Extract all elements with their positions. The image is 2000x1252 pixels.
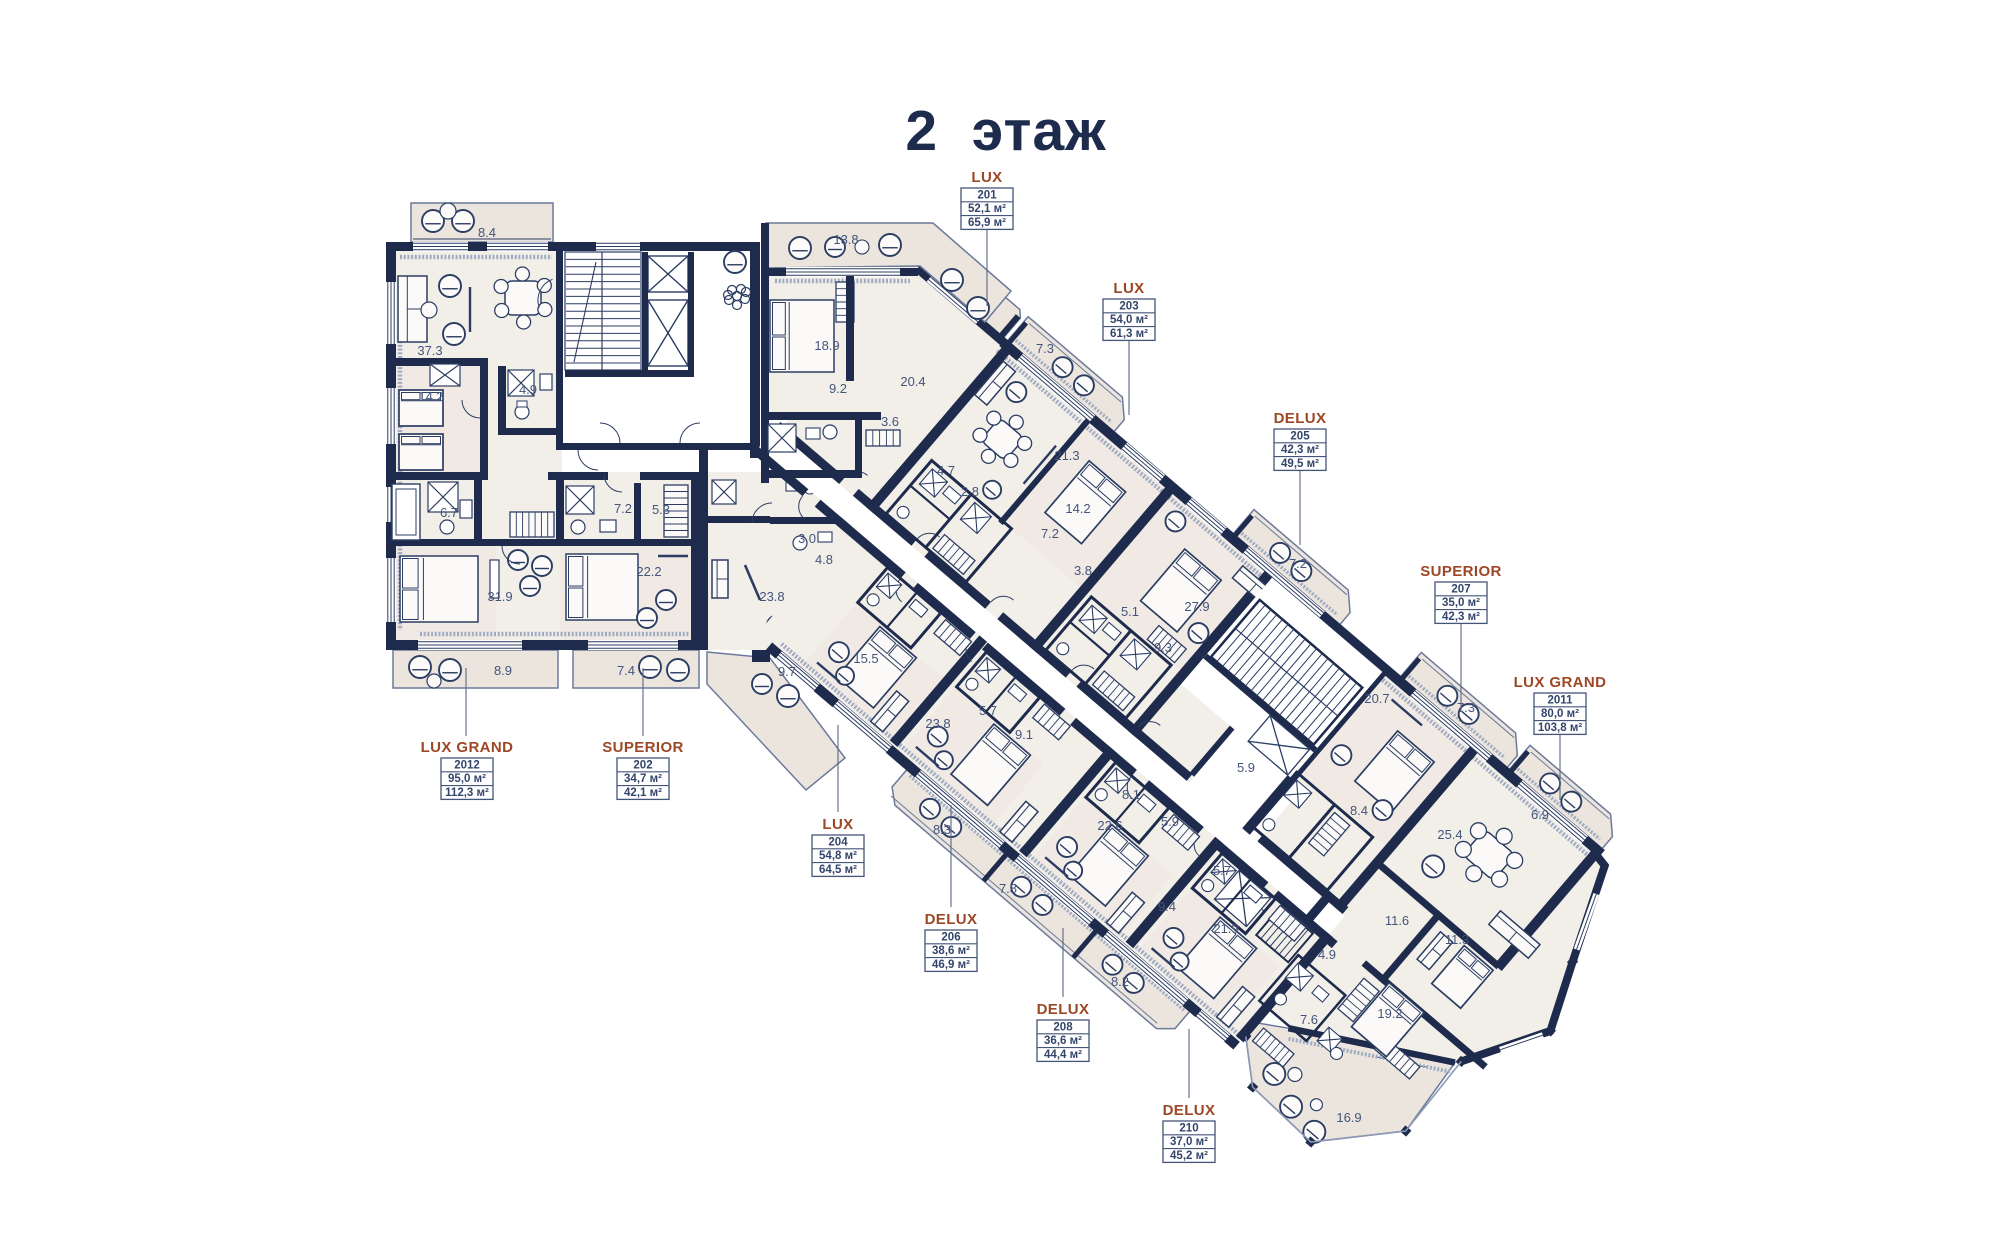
svg-text:21.9: 21.9 [1213, 921, 1238, 936]
svg-text:7.2: 7.2 [1041, 526, 1059, 541]
svg-text:19.2: 19.2 [1377, 1006, 1402, 1021]
svg-text:15.5: 15.5 [853, 651, 878, 666]
svg-text:LUX: LUX [822, 816, 853, 833]
svg-text:206: 206 [941, 931, 960, 943]
svg-text:14.2: 14.2 [418, 389, 443, 404]
svg-text:42,3 м²: 42,3 м² [1281, 444, 1319, 456]
svg-text:9.1: 9.1 [1015, 727, 1033, 742]
svg-text:207: 207 [1451, 583, 1470, 595]
svg-text:20.4: 20.4 [900, 374, 925, 389]
svg-text:9.7: 9.7 [778, 664, 796, 679]
svg-text:54,0 м²: 54,0 м² [1110, 314, 1148, 326]
svg-text:210: 210 [1179, 1122, 1198, 1134]
svg-text:42,1 м²: 42,1 м² [624, 787, 662, 799]
svg-text:11.6: 11.6 [1385, 913, 1409, 928]
svg-text:4.8: 4.8 [815, 552, 833, 567]
svg-text:3.6: 3.6 [881, 414, 899, 429]
svg-text:49,5 м²: 49,5 м² [1281, 458, 1319, 470]
svg-text:65,9 м²: 65,9 м² [968, 217, 1006, 229]
svg-text:36,6 м²: 36,6 м² [1044, 1035, 1082, 1047]
svg-text:DELUX: DELUX [1163, 1102, 1216, 1119]
svg-text:21.3: 21.3 [1054, 448, 1079, 463]
svg-text:23.8: 23.8 [925, 716, 950, 731]
svg-text:34,7 м²: 34,7 м² [624, 773, 662, 785]
svg-text:13.8: 13.8 [833, 232, 858, 247]
svg-text:35,0 м²: 35,0 м² [1442, 597, 1480, 609]
svg-text:5.7: 5.7 [979, 703, 997, 718]
svg-text:208: 208 [1053, 1021, 1073, 1033]
svg-text:202: 202 [633, 759, 652, 771]
svg-text:201: 201 [977, 189, 997, 201]
svg-text:8.4: 8.4 [478, 225, 496, 240]
svg-text:7.8: 7.8 [999, 881, 1017, 896]
svg-text:5.7: 5.7 [1213, 863, 1231, 878]
svg-text:204: 204 [828, 836, 848, 848]
svg-text:205: 205 [1290, 430, 1310, 442]
svg-text:38,6 м²: 38,6 м² [932, 945, 970, 957]
svg-text:DELUX: DELUX [925, 911, 978, 928]
svg-text:22.6: 22.6 [1097, 818, 1122, 833]
svg-text:LUX GRAND: LUX GRAND [1514, 674, 1607, 691]
svg-text:52,1 м²: 52,1 м² [968, 203, 1006, 215]
svg-text:3.0: 3.0 [798, 531, 816, 546]
svg-text:27.9: 27.9 [1184, 599, 1209, 614]
svg-text:95,0 м²: 95,0 м² [448, 773, 486, 785]
svg-text:5.9: 5.9 [1237, 760, 1255, 775]
svg-text:203: 203 [1119, 300, 1138, 312]
svg-text:7.2: 7.2 [614, 501, 632, 516]
svg-text:2012: 2012 [454, 759, 480, 771]
svg-text:44,4 м²: 44,4 м² [1044, 1049, 1082, 1061]
svg-text:31.9: 31.9 [487, 589, 512, 604]
svg-text:42,3 м²: 42,3 м² [1442, 611, 1480, 623]
svg-text:LUX GRAND: LUX GRAND [421, 739, 514, 756]
svg-text:45,2 м²: 45,2 м² [1170, 1150, 1208, 1162]
svg-text:80,0 м²: 80,0 м² [1541, 708, 1579, 720]
svg-text:4.9: 4.9 [519, 382, 537, 397]
svg-text:20.7: 20.7 [1364, 691, 1389, 706]
svg-text:18.9: 18.9 [814, 338, 839, 353]
svg-text:37,0 м²: 37,0 м² [1170, 1136, 1208, 1148]
svg-text:37.3: 37.3 [417, 343, 442, 358]
svg-text:SUPERIOR: SUPERIOR [602, 739, 684, 756]
svg-text:8.3: 8.3 [933, 822, 951, 837]
svg-text:DELUX: DELUX [1274, 410, 1327, 427]
svg-text:9.4: 9.4 [1158, 899, 1176, 914]
svg-text:16.9: 16.9 [1336, 1110, 1361, 1125]
svg-text:LUX: LUX [971, 169, 1002, 186]
svg-text:8.2: 8.2 [1111, 974, 1129, 989]
svg-text:4.7: 4.7 [937, 463, 955, 478]
svg-text:7.3: 7.3 [1036, 341, 1054, 356]
svg-text:5.9: 5.9 [1161, 814, 1179, 829]
svg-text:64,5 м²: 64,5 м² [819, 864, 857, 876]
svg-text:61,3 м²: 61,3 м² [1110, 328, 1148, 340]
svg-text:103,8 м²: 103,8 м² [1538, 722, 1582, 734]
svg-text:11.3: 11.3 [1445, 932, 1469, 947]
svg-text:3.8: 3.8 [1074, 563, 1092, 578]
svg-text:25.4: 25.4 [1437, 827, 1462, 842]
svg-text:6.7: 6.7 [440, 505, 458, 520]
svg-text:8.1: 8.1 [1122, 787, 1140, 802]
svg-text:2011: 2011 [1548, 694, 1574, 706]
svg-text:2.8: 2.8 [961, 484, 979, 499]
svg-text:2 этаж: 2 этаж [905, 99, 1106, 163]
svg-text:SUPERIOR: SUPERIOR [1420, 563, 1502, 580]
svg-text:5.3: 5.3 [652, 502, 670, 517]
svg-text:DELUX: DELUX [1037, 1001, 1090, 1018]
svg-text:5.1: 5.1 [1121, 604, 1139, 619]
svg-text:7.6: 7.6 [1300, 1012, 1318, 1027]
svg-text:8.4: 8.4 [1350, 803, 1368, 818]
svg-text:8.9: 8.9 [494, 663, 512, 678]
svg-text:112,3 м²: 112,3 м² [445, 787, 489, 799]
svg-text:54,8 м²: 54,8 м² [819, 850, 857, 862]
svg-text:7.4: 7.4 [617, 663, 635, 678]
svg-text:4.9: 4.9 [1318, 947, 1336, 962]
svg-text:6.9: 6.9 [1531, 807, 1549, 822]
svg-text:7.2: 7.2 [1289, 556, 1307, 571]
svg-text:9.3: 9.3 [1154, 640, 1172, 655]
svg-text:7.3: 7.3 [1457, 700, 1475, 715]
svg-text:22.2: 22.2 [636, 564, 661, 579]
svg-text:LUX: LUX [1113, 280, 1144, 297]
svg-text:14.2: 14.2 [1065, 501, 1090, 516]
svg-text:23.8: 23.8 [759, 589, 784, 604]
svg-text:46,9 м²: 46,9 м² [932, 959, 970, 971]
svg-text:9.2: 9.2 [829, 381, 847, 396]
